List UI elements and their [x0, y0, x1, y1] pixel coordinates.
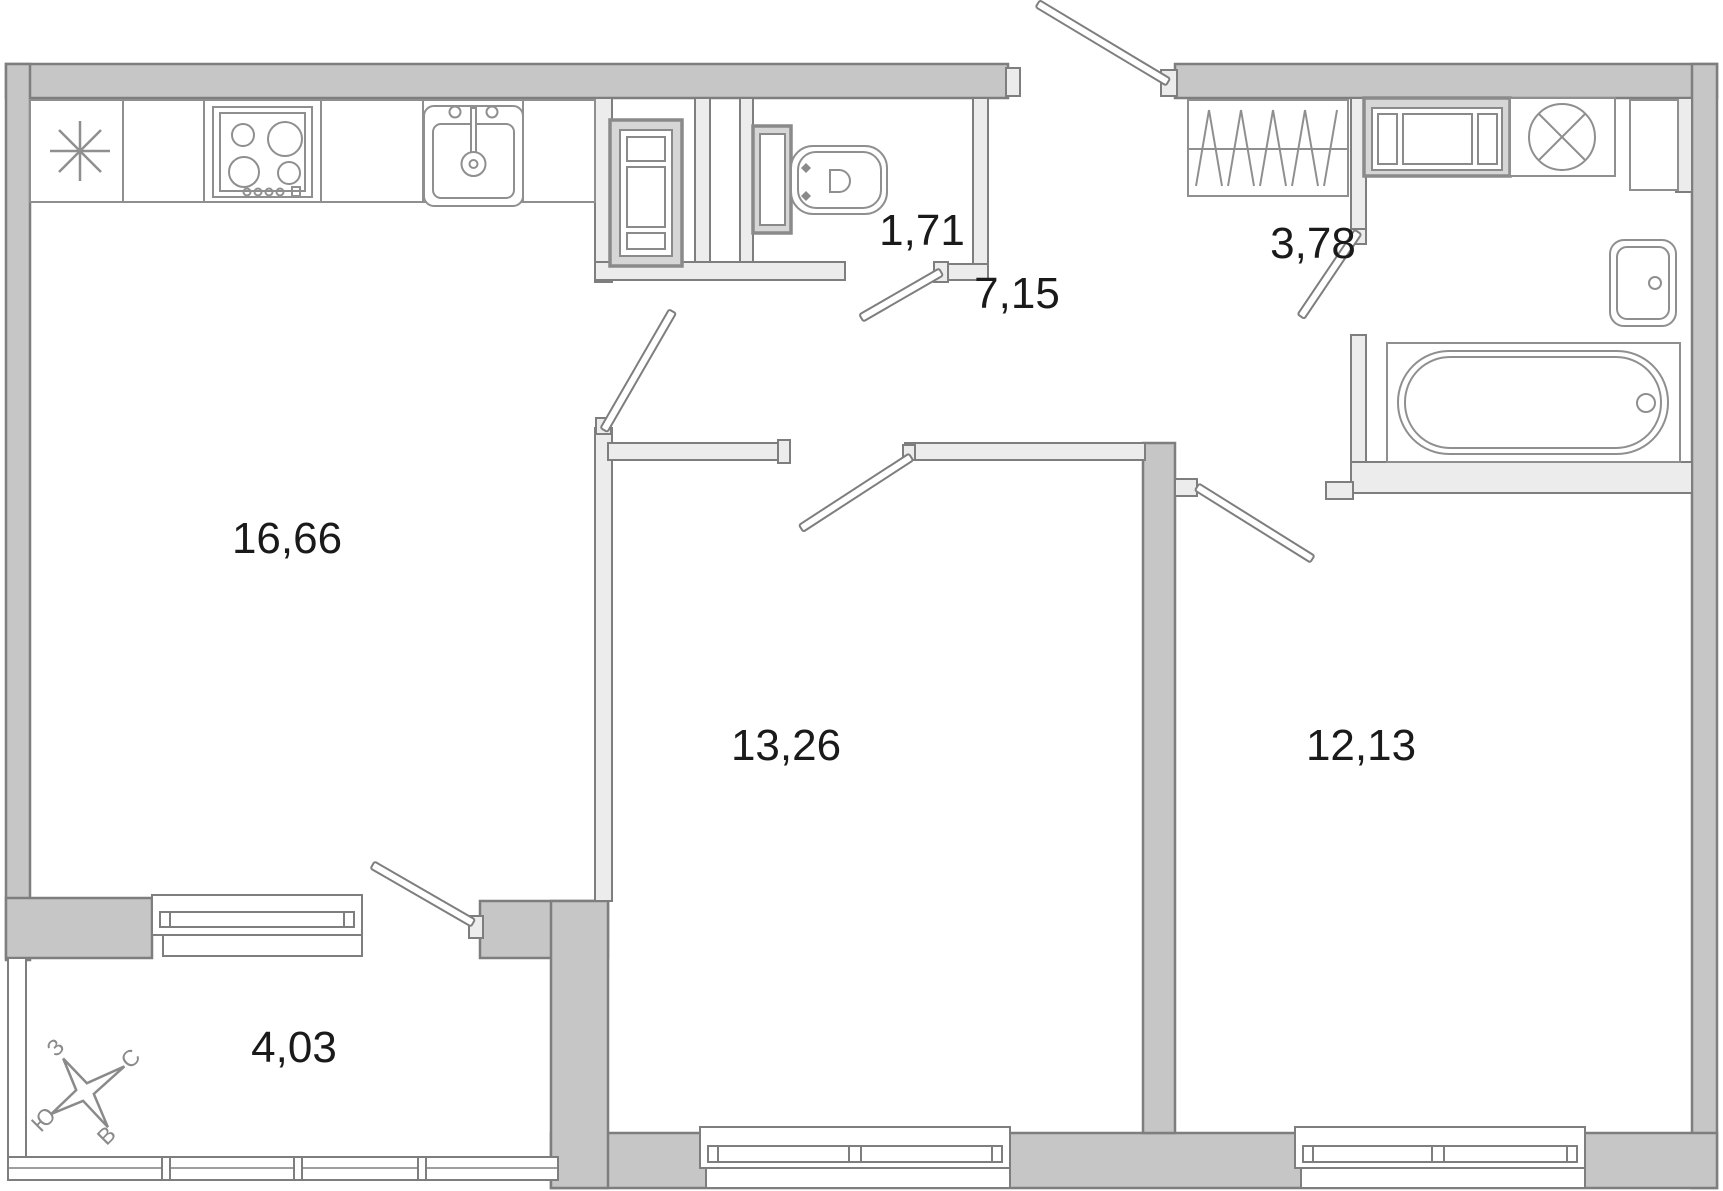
label-bathroom: 3,78	[1270, 219, 1356, 268]
bathroom-fixtures	[1364, 98, 1680, 462]
vent-shaft-icon	[610, 120, 682, 266]
balcony-glazing-divider	[294, 1157, 302, 1180]
wall-wc-left	[740, 98, 753, 266]
wall-wc-right	[973, 98, 988, 280]
window-sill	[706, 1168, 1010, 1188]
wall-left	[6, 64, 30, 960]
bedroom2-door-leaf	[1195, 484, 1315, 563]
wall-bedroom1-top-left	[608, 443, 778, 460]
label-bedroom-1: 13,26	[731, 721, 841, 770]
window-bedroom1	[700, 1127, 1010, 1188]
wall-bedroom-divider	[1143, 443, 1175, 1133]
bedroom1-door-leaf	[799, 454, 913, 532]
bathroom-cabinet	[1630, 100, 1678, 190]
bedroom2-door-hinge	[1175, 479, 1197, 496]
compass-east: В	[92, 1121, 121, 1150]
wall-top-right	[1175, 64, 1717, 98]
entrance-jamb	[1006, 68, 1020, 96]
windows	[152, 895, 1585, 1188]
bathtub-icon	[1387, 343, 1680, 462]
bedroom1-door-jamb	[778, 440, 790, 463]
wall-bedroom1-top-right	[905, 443, 1145, 460]
wall-balcony-right	[551, 901, 608, 1188]
wall-top-left	[6, 64, 1008, 98]
balcony-glazing-divider	[418, 1157, 426, 1180]
vent-shaft-icon	[1364, 98, 1510, 176]
living-door-leaf	[601, 309, 676, 432]
window-sill	[163, 935, 362, 956]
entrance-door-leaf	[1036, 0, 1170, 85]
wc-door-leaf	[859, 269, 943, 322]
wall-right	[1692, 64, 1717, 1188]
toilet-icon	[753, 126, 887, 233]
bathroom-sink-icon	[1610, 240, 1676, 326]
window-living	[152, 895, 362, 956]
balcony-door-leaf	[371, 862, 475, 927]
balcony-glazing-divider	[162, 1157, 170, 1180]
label-living-kitchen: 16,66	[232, 514, 342, 563]
bedroom2-door-jamb	[1326, 482, 1353, 499]
stove-icon	[213, 107, 312, 197]
wall-bathroom-bottom	[1351, 462, 1692, 493]
compass-rose-icon: З С Ю В	[26, 1033, 145, 1150]
kitchen-star-icon	[50, 121, 110, 181]
wall-living-bottom-left	[6, 898, 152, 958]
bearing-walls	[6, 64, 1717, 1188]
window-sill	[1301, 1168, 1585, 1188]
area-labels: 16,66 1,71 7,15 3,78 13,26 12,13 4,03	[232, 206, 1416, 1072]
compass-south: Ю	[26, 1102, 61, 1137]
compass-west: З	[41, 1033, 69, 1061]
label-balcony: 4,03	[251, 1023, 337, 1072]
label-hallway: 7,15	[974, 269, 1060, 318]
kitchen-counter	[30, 100, 595, 206]
window-bedroom2	[1295, 1127, 1585, 1188]
label-bedroom-2: 12,13	[1306, 721, 1416, 770]
balcony-wall-left	[8, 958, 26, 1180]
washing-machine-icon	[1510, 98, 1615, 176]
floor-plan: 16,66 1,71 7,15 3,78 13,26 12,13 4,03 З …	[0, 0, 1723, 1191]
wall-shaft-right	[695, 98, 710, 266]
wardrobe-icon	[1188, 100, 1348, 196]
label-wc: 1,71	[879, 206, 965, 255]
wall-living-bedroom1	[595, 428, 612, 901]
kitchen-sink-icon	[424, 106, 523, 206]
